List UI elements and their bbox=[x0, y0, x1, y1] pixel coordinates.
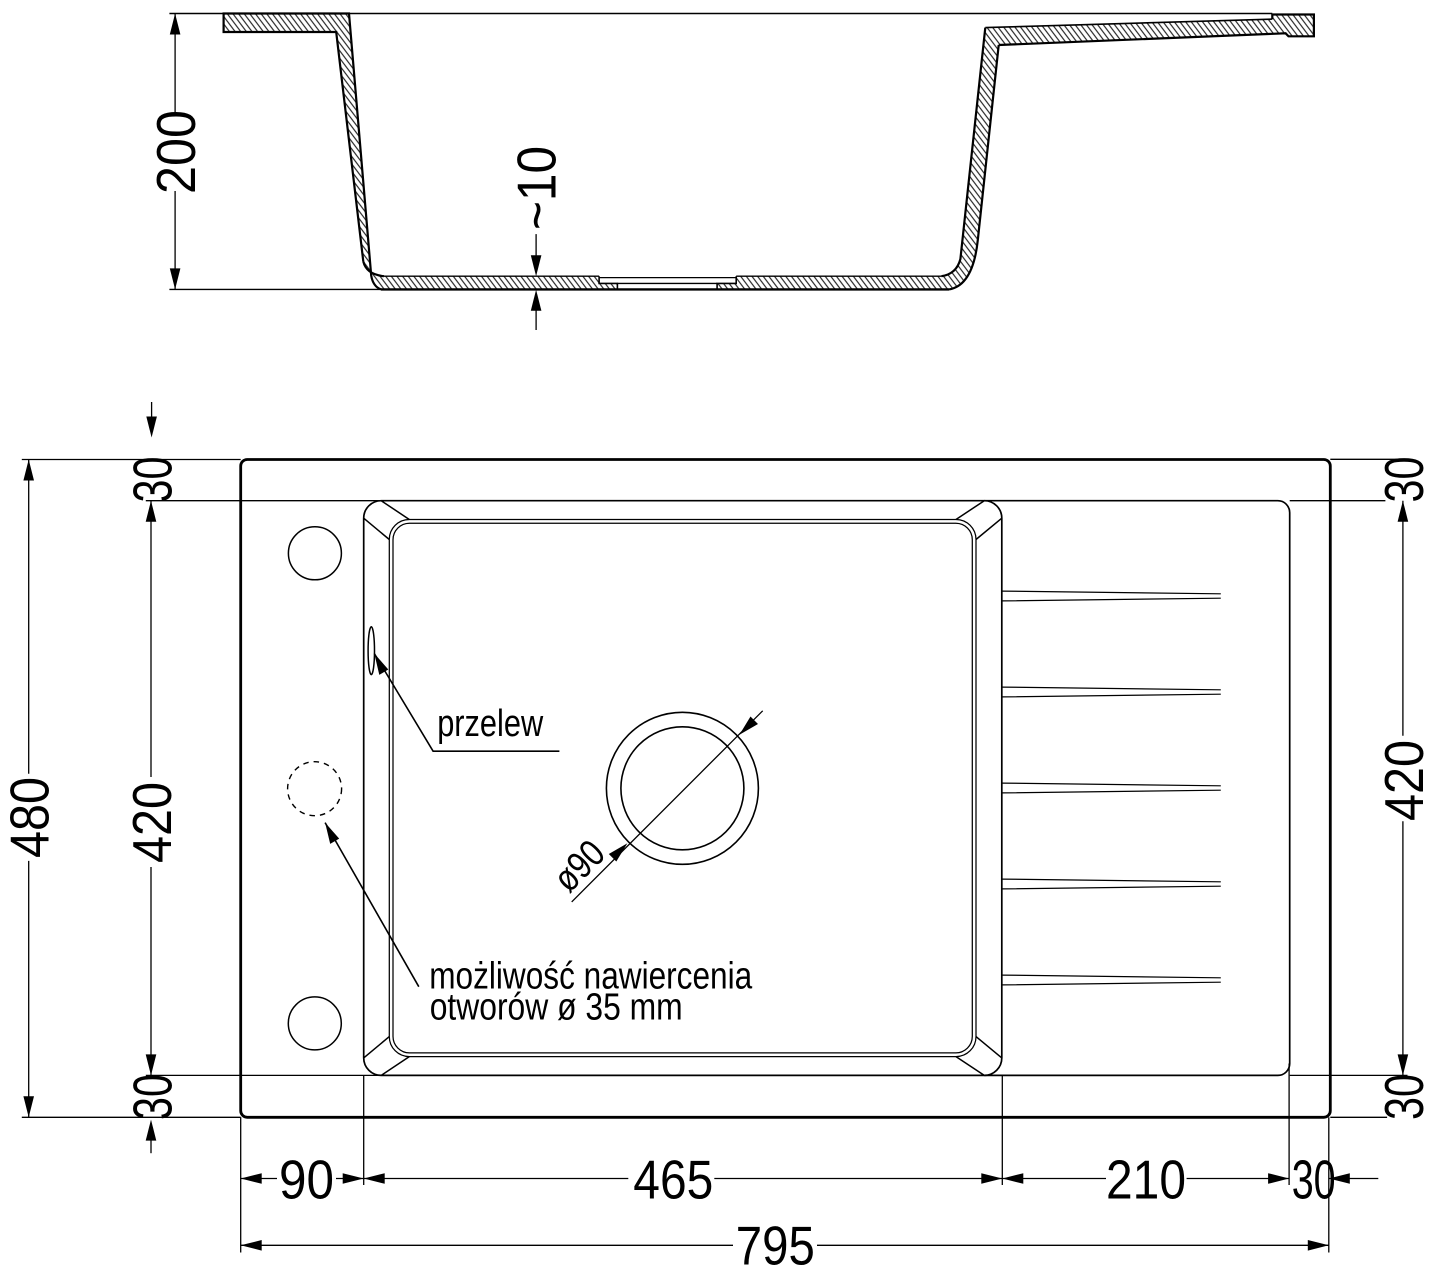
svg-text:200: 200 bbox=[145, 110, 207, 194]
svg-text:795: 795 bbox=[736, 1214, 815, 1276]
svg-text:480: 480 bbox=[0, 777, 61, 858]
svg-text:30: 30 bbox=[1373, 457, 1435, 503]
svg-text:90: 90 bbox=[279, 1148, 334, 1210]
svg-text:~10: ~10 bbox=[506, 146, 568, 230]
svg-text:210: 210 bbox=[1106, 1148, 1186, 1210]
svg-text:otworów ø 35 mm: otworów ø 35 mm bbox=[430, 986, 683, 1028]
svg-text:30: 30 bbox=[122, 1074, 184, 1120]
svg-text:420: 420 bbox=[121, 782, 183, 863]
svg-text:30: 30 bbox=[1373, 1074, 1435, 1120]
svg-text:465: 465 bbox=[633, 1148, 713, 1210]
svg-text:30: 30 bbox=[1292, 1148, 1336, 1210]
svg-text:30: 30 bbox=[122, 457, 184, 503]
svg-text:przelew: przelew bbox=[437, 703, 543, 745]
svg-text:420: 420 bbox=[1373, 740, 1435, 821]
